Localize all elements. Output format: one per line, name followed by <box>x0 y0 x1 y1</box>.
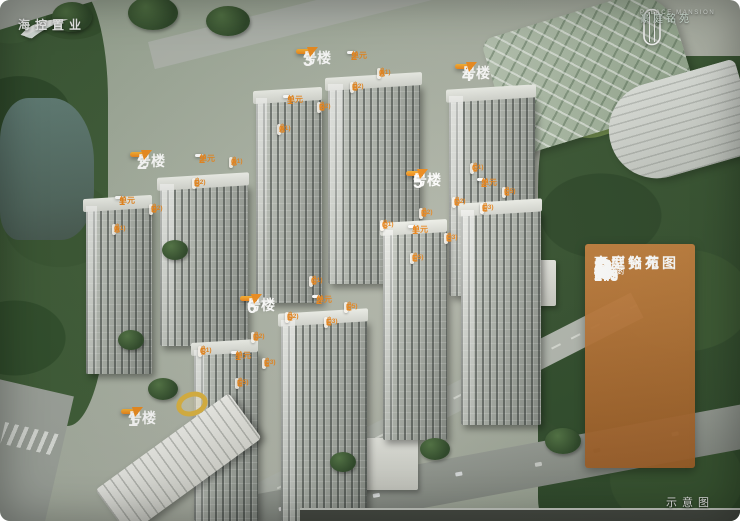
unit-type-label: A户型(01) <box>277 124 281 135</box>
unit-type-label: A户型(01) <box>112 224 116 235</box>
unit-label: 1单元 <box>115 196 123 199</box>
unit-type-label: E户型(03) <box>262 358 266 369</box>
unit-type-label: D户型(02) <box>251 332 255 343</box>
unit-type-label: E户型(05) <box>502 187 506 198</box>
unit-type-label: D户型(02) <box>285 312 289 323</box>
unit-type-label: E户型(05) <box>410 253 414 264</box>
unit-label: 1单元 <box>408 225 416 228</box>
building-label: 2号楼 <box>130 152 144 157</box>
unit-type-label: E户型(03) <box>324 317 328 328</box>
unit-type-label: B户型(02) <box>149 204 153 215</box>
building-label: 1号楼 <box>121 409 135 414</box>
building-label: 4号楼 <box>455 64 469 69</box>
unit-label: 1单元 <box>283 95 291 98</box>
unit-type-label: C户型(01) <box>380 220 384 231</box>
unit-type-label: B户型(02) <box>350 82 354 93</box>
aerial-rendering: 1号楼2号楼3号楼4号楼5号楼6号楼2单元1单元2单元1单元2单元1单元2单元1… <box>0 0 740 521</box>
unit-label: 2单元 <box>312 295 320 298</box>
unit-type-label: C户型(01) <box>198 346 202 357</box>
unit-type-label: C户型(01) <box>309 276 313 287</box>
unit-type-label: E户型(03) <box>444 233 448 244</box>
unit-type-label: C户型(01) <box>470 163 474 174</box>
building-label: 5号楼 <box>406 171 420 176</box>
legend-panel: 豪庭铭苑 户型分布图 A 建筑面积约 289m2 B 建筑面积约 245m2 C… <box>585 244 695 468</box>
unit-type-label: B户型(02) <box>317 102 321 113</box>
unit-type-label: E户型(03) <box>480 203 484 214</box>
unit-type-label: B户型(02) <box>192 178 196 189</box>
unit-label: 1单元 <box>231 351 239 354</box>
unit-type-label: E户型(05) <box>235 378 239 389</box>
project-name-cn: 豪庭铭苑 <box>640 10 692 25</box>
unit-label: 2单元 <box>347 51 355 54</box>
schematic-caption: 示意图 <box>666 494 714 510</box>
unit-type-label: E户型(05) <box>344 302 348 313</box>
unit-type-label: A户型(01) <box>377 68 381 79</box>
building-label: 3号楼 <box>296 49 310 54</box>
unit-type-label: A户型(01) <box>229 157 233 168</box>
unit-type-label: D户型(02) <box>452 197 456 208</box>
building-label: 6号楼 <box>240 296 254 301</box>
unit-type-label: D户型(02) <box>419 208 423 219</box>
developer-name: 海控置业 <box>18 16 86 33</box>
unit-label: 2单元 <box>195 154 203 157</box>
unit-label: 2单元 <box>477 178 485 181</box>
